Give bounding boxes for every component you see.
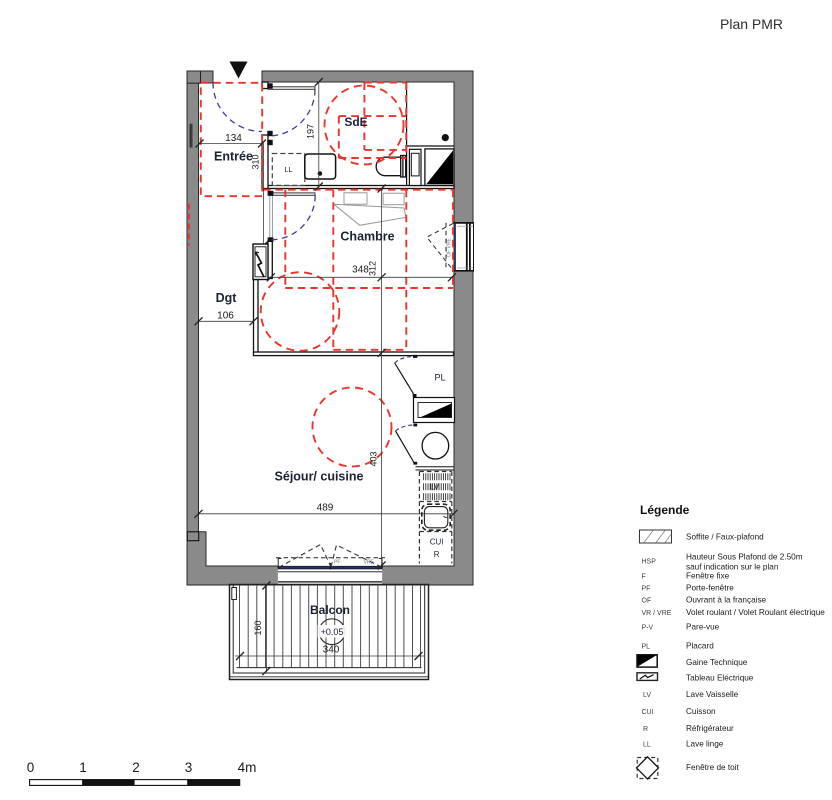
svg-text:LL: LL <box>643 742 651 749</box>
svg-text:Fenêtre de toit: Fenêtre de toit <box>686 763 740 772</box>
svg-text:OF VRE: OF VRE <box>447 238 453 257</box>
svg-text:Chambre: Chambre <box>340 230 394 244</box>
svg-text:+0.05: +0.05 <box>321 627 344 637</box>
svg-text:PL: PL <box>434 373 445 383</box>
svg-text:312: 312 <box>368 261 378 276</box>
svg-text:Gaine Technique: Gaine Technique <box>686 658 748 667</box>
svg-text:VRE: VRE <box>364 560 375 566</box>
svg-text:134: 134 <box>225 133 242 144</box>
svg-text:Soffite / Faux-plafond: Soffite / Faux-plafond <box>686 533 764 542</box>
svg-text:Lave Vaisselle: Lave Vaisselle <box>686 690 739 699</box>
svg-text:F: F <box>642 574 646 581</box>
svg-text:Pare-vue: Pare-vue <box>686 623 720 632</box>
svg-text:Plan PMR: Plan PMR <box>720 16 783 32</box>
svg-text:Séjour/ cuisine: Séjour/ cuisine <box>275 470 364 484</box>
svg-text:LL: LL <box>284 165 292 174</box>
svg-text:Cuisson: Cuisson <box>686 707 716 716</box>
svg-text:Légende: Légende <box>640 503 690 517</box>
svg-text:Volet roulant / Volet Roulant: Volet roulant / Volet Roulant électrique <box>686 608 825 617</box>
svg-text:OF: OF <box>642 598 652 605</box>
svg-text:LV: LV <box>643 692 651 699</box>
svg-text:Porte-fenêtre: Porte-fenêtre <box>686 584 734 593</box>
svg-text:2: 2 <box>132 760 140 775</box>
svg-text:Hauteur Sous Plafond de 2.50m: Hauteur Sous Plafond de 2.50m <box>686 553 803 562</box>
svg-text:Balcon: Balcon <box>310 603 350 617</box>
svg-text:PL: PL <box>642 644 651 651</box>
svg-text:Lave linge: Lave linge <box>686 740 724 749</box>
svg-text:310: 310 <box>251 154 261 169</box>
svg-text:197: 197 <box>306 124 316 139</box>
svg-text:Réfrigérateur: Réfrigérateur <box>686 724 734 733</box>
svg-text:403: 403 <box>369 451 379 466</box>
svg-text:Dgt: Dgt <box>216 291 238 305</box>
svg-text:SdE: SdE <box>344 115 367 129</box>
svg-text:106: 106 <box>217 311 234 322</box>
svg-text:PF: PF <box>642 586 651 593</box>
svg-text:4m: 4m <box>238 760 257 775</box>
svg-text:Ouvrant à la française: Ouvrant à la française <box>686 596 767 605</box>
svg-text:CUI: CUI <box>430 538 444 547</box>
svg-text:CUI: CUI <box>642 709 654 716</box>
svg-text:LV: LV <box>430 483 440 492</box>
svg-text:HSP: HSP <box>642 559 657 566</box>
svg-text:R: R <box>643 726 648 733</box>
svg-text:Tableau Eléctrique: Tableau Eléctrique <box>686 674 754 683</box>
svg-text:1: 1 <box>79 760 87 775</box>
svg-text:P-V: P-V <box>642 625 654 632</box>
svg-text:340: 340 <box>323 645 340 656</box>
svg-text:Entrée: Entrée <box>214 150 253 164</box>
svg-text:3: 3 <box>185 760 193 775</box>
svg-text:Placard: Placard <box>686 642 714 651</box>
svg-text:sauf indication sur le plan: sauf indication sur le plan <box>686 563 779 572</box>
svg-text:PF: PF <box>334 560 340 566</box>
svg-text:489: 489 <box>317 503 334 514</box>
svg-text:Fenêtre fixe: Fenêtre fixe <box>686 572 730 581</box>
svg-text:R: R <box>434 550 440 559</box>
svg-text:160: 160 <box>253 620 263 635</box>
svg-text:VR / VRE: VR / VRE <box>642 610 672 617</box>
svg-text:0: 0 <box>27 760 35 775</box>
